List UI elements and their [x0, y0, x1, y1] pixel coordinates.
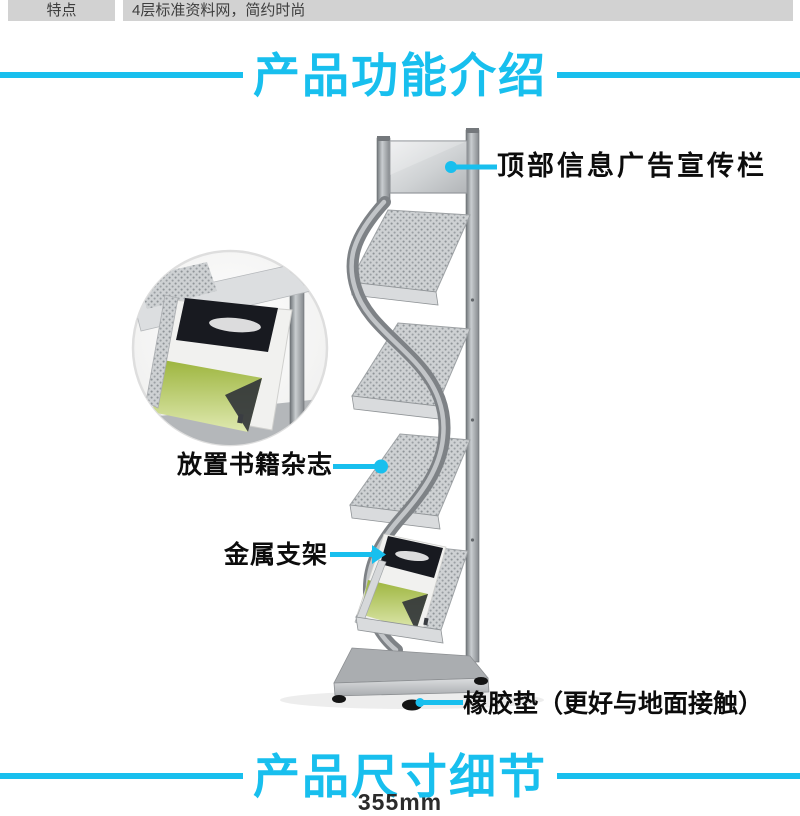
left-post-cap [377, 136, 390, 141]
magnifier-inset [133, 251, 335, 455]
callout-dot-icon [374, 460, 388, 474]
callout-label-foot: 橡胶垫（更好与地面接触） [463, 692, 763, 717]
rubber-foot [332, 695, 346, 703]
banner-line-left [0, 773, 243, 779]
callout-label-shelf: 放置书籍杂志 [177, 453, 333, 478]
right-post-cap [466, 128, 479, 133]
callout-label-top-board: 顶部信息广告宣传栏 [497, 153, 767, 180]
post-screw [471, 418, 474, 421]
stand-main [280, 128, 544, 711]
post-screw [471, 298, 474, 301]
post-screw [471, 538, 474, 541]
right-post [466, 130, 479, 662]
product-stand-illustration [0, 0, 800, 800]
callout-shelf [333, 460, 388, 474]
dimension-value: 355mm [0, 789, 800, 816]
banner-line-right [557, 773, 800, 779]
callout-label-frame: 金属支架 [224, 543, 328, 568]
rubber-foot [474, 677, 488, 685]
left-post [377, 138, 390, 204]
shelf-tier-2 [352, 323, 470, 419]
